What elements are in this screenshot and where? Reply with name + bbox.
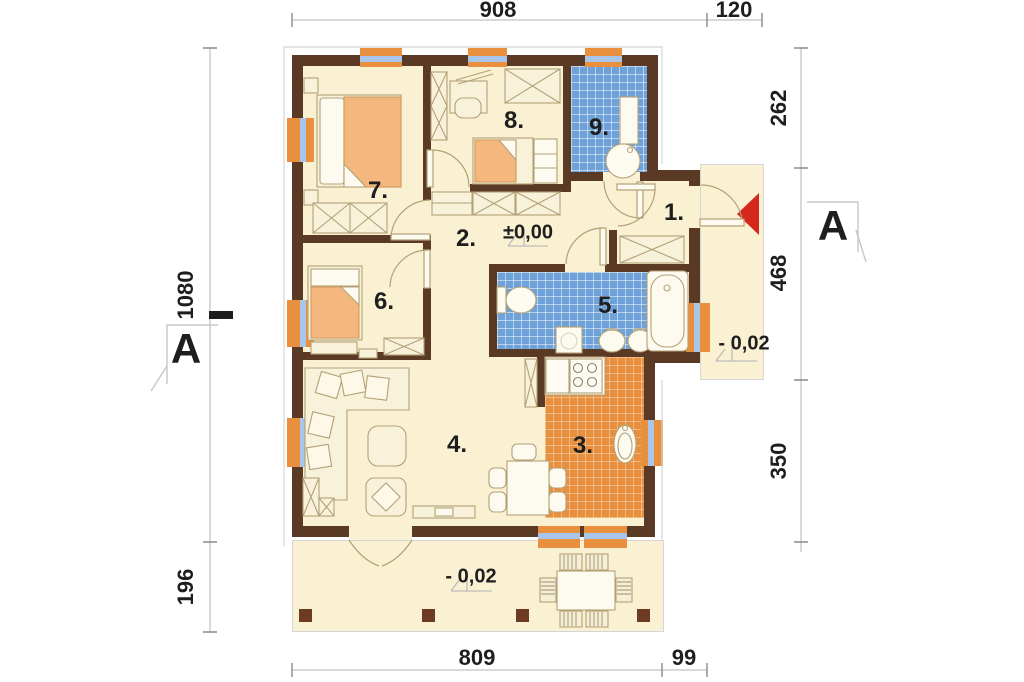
bed-room6 [308, 266, 362, 340]
armchair [366, 478, 406, 516]
kitchen-sink [614, 425, 636, 463]
dim-top-main: 908 [480, 0, 517, 23]
bed-room8 [473, 138, 557, 184]
room-number-2: 2. [456, 225, 476, 253]
cabinet-living-bottom [319, 498, 334, 516]
door-room6 [390, 250, 430, 288]
bench-room6 [311, 342, 357, 354]
door-terrace-double [349, 540, 412, 566]
section-direction-dash [209, 311, 233, 319]
level-marker-terrace: - 0,02 [445, 566, 496, 589]
room-number-4: 4. [447, 431, 467, 459]
side-table-room6 [359, 349, 377, 358]
room-number-5: 5. [598, 292, 618, 320]
toilet [497, 287, 536, 313]
wardrobe-room6 [384, 338, 424, 355]
cabinet-room9 [620, 97, 638, 144]
pantry-cabinet [525, 359, 537, 407]
nightstand [304, 78, 318, 93]
tv-bench [413, 506, 475, 518]
furniture [299, 69, 688, 627]
room-number-8: 8. [504, 107, 524, 135]
section-letter-left: A [171, 325, 201, 373]
cabinet-living-left [303, 478, 319, 516]
desk-chair-room8 [455, 98, 481, 118]
door-entrance [700, 185, 744, 226]
dim-right-mid: 468 [766, 255, 792, 292]
level-marker-hall: ±0,00 [503, 222, 553, 245]
room-number-9: 9. [589, 114, 609, 142]
hall-wardrobe-b [516, 192, 560, 215]
door-room8 [427, 150, 469, 187]
room-number-7: 7. [368, 177, 388, 205]
bed-room7 [317, 95, 401, 187]
washbasin [599, 329, 625, 352]
room-number-3: 3. [573, 432, 593, 460]
dim-bottom-right: 99 [672, 645, 696, 671]
door-room7 [391, 200, 430, 240]
door-room1 [617, 184, 655, 226]
dim-left-terrace: 196 [173, 569, 199, 606]
dim-right-top: 262 [766, 90, 792, 127]
hall-shelf [432, 192, 472, 215]
section-letter-right: A [818, 202, 848, 250]
bathtub [647, 271, 688, 351]
level-marker-porch: - 0,02 [718, 333, 769, 356]
dim-right-bottom: 350 [766, 443, 792, 480]
dim-bottom-main: 809 [459, 645, 496, 671]
hall-wardrobe-a [473, 192, 515, 215]
floor-plan-canvas: 908 120 809 99 1080 196 262 468 350 1. 2… [0, 0, 1024, 682]
dim-top-porch: 120 [716, 0, 753, 23]
dim-left-main: 1080 [173, 271, 199, 320]
room-number-1: 1. [664, 199, 684, 227]
washer-room9 [606, 144, 640, 178]
fridge [546, 359, 569, 393]
wardrobe-room8 [505, 69, 560, 103]
wardrobe-room1 [620, 236, 684, 263]
door-bath5 [566, 228, 606, 265]
dining-set [489, 444, 566, 515]
stove [570, 359, 602, 393]
terrace-dining-set [540, 554, 632, 627]
closet-room8 [431, 72, 447, 140]
wardrobe-room7 [313, 203, 387, 233]
plan-linework [0, 0, 1024, 682]
level-marker-symbols [451, 227, 757, 591]
room-number-6: 6. [374, 288, 394, 316]
washing-machine [556, 327, 582, 353]
coffee-table [368, 426, 406, 466]
